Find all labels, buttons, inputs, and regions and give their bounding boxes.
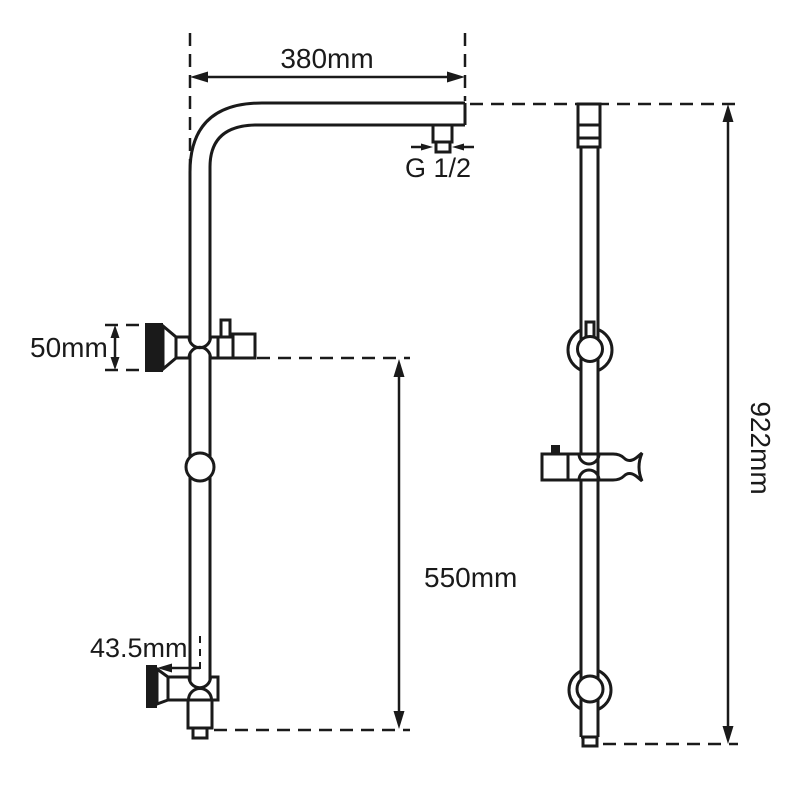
dimension-inlet-thread: G 1/2 xyxy=(405,153,471,183)
dim-550-label: 550mm xyxy=(424,562,517,593)
arrowhead-right-icon xyxy=(447,72,465,83)
hose-outlet-housing xyxy=(188,700,212,728)
dim-43-label: 43.5mm xyxy=(90,633,188,663)
g-half-label: G 1/2 xyxy=(405,153,471,183)
diverter-knob xyxy=(221,320,230,338)
arrowhead-left-icon xyxy=(452,144,464,151)
dim-380-label: 380mm xyxy=(280,43,373,74)
wall-plate-bottom xyxy=(146,665,157,708)
dimension-overall-height: 922mm xyxy=(723,104,777,744)
dimension-slide-length: 550mm xyxy=(394,359,518,729)
wall-plate-top xyxy=(145,323,163,372)
arrowhead-right-icon xyxy=(421,144,433,151)
bottom-bracket-cone xyxy=(157,669,168,704)
bottom-bracket-hub xyxy=(577,676,603,702)
arrowhead-down-icon xyxy=(394,711,405,729)
drawing-canvas: 380mm G 1/2 50mm 550mm 43.5mm 922mm xyxy=(0,0,800,800)
top-bracket-hub xyxy=(578,337,603,362)
arrowhead-up-icon xyxy=(723,104,734,122)
dimension-bottom-offset: 43.5mm xyxy=(90,633,200,673)
bracket-cone xyxy=(163,326,176,369)
side-rail-top-connector xyxy=(578,104,600,147)
dim-50-label: 50mm xyxy=(30,332,108,363)
arrowhead-down-icon xyxy=(111,357,120,370)
slider-body xyxy=(542,454,598,480)
side-rail-fill xyxy=(582,147,599,737)
rail-inner-edge xyxy=(210,125,465,700)
bottom-wall-bracket xyxy=(146,665,218,738)
rail-outer-edge xyxy=(190,103,465,700)
arrowhead-up-icon xyxy=(111,325,120,338)
technical-drawing: 380mm G 1/2 50mm 550mm 43.5mm 922mm xyxy=(0,0,800,800)
dimension-bracket-height: 50mm xyxy=(30,325,147,370)
arrowhead-up-icon xyxy=(394,359,405,377)
outlet-cap-arc xyxy=(189,689,212,701)
dimension-arm-width: 380mm xyxy=(190,43,465,83)
handset-cradle xyxy=(598,453,642,481)
side-bottom-nipple xyxy=(583,737,597,746)
top-wall-bracket xyxy=(145,320,255,372)
construction-lines xyxy=(190,33,738,744)
fitting-body xyxy=(433,125,452,142)
dim-922-label: 922mm xyxy=(745,401,776,494)
front-view xyxy=(145,103,474,738)
hose-outlet-nipple xyxy=(193,728,207,738)
arrowhead-left-icon xyxy=(190,72,208,83)
fitting-thread xyxy=(436,142,450,152)
slider-ball xyxy=(186,453,214,481)
g-half-inlet-fitting xyxy=(411,125,474,152)
side-view xyxy=(542,104,642,746)
arrowhead-down-icon xyxy=(723,726,734,744)
bracket-cylinder xyxy=(176,334,255,358)
